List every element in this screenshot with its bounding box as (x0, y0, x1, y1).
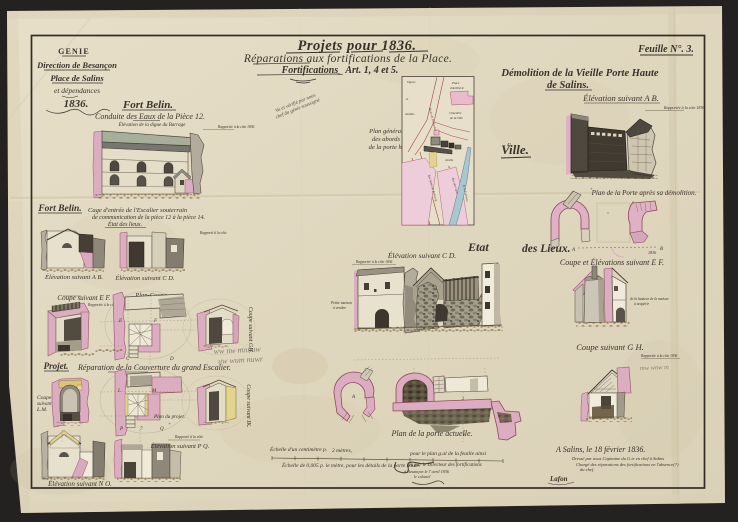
svg-text:GENIE: GENIE (58, 47, 90, 56)
svg-text:P: P (119, 427, 123, 432)
svg-text:1836: 1836 (648, 250, 656, 255)
svg-text:Etat: Etat (467, 240, 489, 254)
svg-text:Conduite des Eaux de la Pièce: Conduite des Eaux de la Pièce 12. (95, 112, 205, 121)
svg-text:Vu par le Directeur des fortif: Vu par le Directeur des fortifications (408, 463, 482, 468)
svg-text:du chef.: du chef. (580, 467, 594, 472)
svg-text:et dépendances: et dépendances (54, 86, 100, 95)
svg-text:D: D (169, 357, 174, 362)
svg-text:Coupe suivant E F.: Coupe suivant E F. (57, 294, 110, 302)
svg-text:Vignes: Vignes (407, 80, 416, 84)
svg-text:Place de Salins: Place de Salins (50, 73, 104, 83)
svg-text:+: + (168, 421, 171, 426)
svg-text:Échelle d'un centimètre p.: Échelle d'un centimètre p. (269, 445, 327, 453)
svg-text:de la Ville: de la Ville (450, 116, 463, 120)
svg-text:L: L (117, 389, 121, 394)
svg-text:Jardin: Jardin (445, 158, 454, 162)
svg-text:de communication de la pièce 1: de communication de la pièce 12 à la piè… (92, 214, 205, 221)
svg-text:Coupe suivant IK.: Coupe suivant IK. (245, 384, 251, 428)
svg-text:pour le plan g.al de la feuill: pour le plan g.al de la feuille ainsi (409, 450, 487, 457)
svg-text:mw wnw m: mw wnw m (640, 364, 669, 372)
svg-text:+: + (590, 186, 593, 191)
svg-text:de la hauteur de la maison: de la hauteur de la maison (630, 297, 669, 301)
svg-text:Jardins: Jardins (405, 112, 415, 116)
svg-text:Coupe: Coupe (37, 395, 52, 401)
svg-text:Plan général: Plan général (368, 128, 403, 135)
svg-text:Ville.: Ville. (501, 142, 529, 157)
svg-text:d'Artillerie: d'Artillerie (450, 86, 465, 90)
svg-text:Q: Q (160, 427, 164, 432)
svg-text:Rapportée à la côte 1836: Rapportée à la côte 1836 (217, 125, 255, 129)
svg-text:Projet.: Projet. (44, 361, 69, 371)
svg-text:et: et (406, 97, 408, 101)
svg-text:Élévation suivant P Q.: Élévation suivant P Q. (150, 442, 210, 450)
svg-text:Échelle de 0,005 p. le mètre,: Échelle de 0,005 p. le mètre, pour les d… (281, 461, 420, 469)
svg-text:Rapporté à la côte: Rapporté à la côte (174, 435, 203, 439)
svg-text:Dressé par nous Capitaine du G: Dressé par nous Capitaine du G.ie en che… (571, 456, 664, 461)
svg-text:2 mètres,: 2 mètres, (332, 448, 353, 454)
svg-text:Rapportée à la côte: Rapportée à la côte (87, 303, 117, 307)
svg-text:Lafon: Lafon (549, 475, 568, 483)
svg-text:à vendre: à vendre (333, 306, 346, 310)
svg-text:Démolition de la Vieille Porte: Démolition de la Vieille Porte Haute (500, 68, 659, 79)
svg-text:Élévation suivant N O.: Élévation suivant N O. (47, 480, 112, 488)
svg-text:B: B (660, 247, 663, 252)
svg-text:Coupe suivant G H.: Coupe suivant G H. (576, 342, 644, 352)
svg-text:à acquérir: à acquérir (634, 302, 650, 306)
svg-text:Feuille N°. 3.: Feuille N°. 3. (637, 44, 694, 55)
svg-text:Rapportée à la côte 1836: Rapportée à la côte 1836 (640, 354, 678, 358)
svg-text:Élévation suivant C D.: Élévation suivant C D. (114, 274, 175, 282)
svg-text:Rapportée à la côte 1836: Rapportée à la côte 1836 (355, 260, 393, 264)
svg-text:de Salins.: de Salins. (547, 80, 589, 91)
svg-text:État des lieux.: État des lieux. (107, 220, 142, 228)
svg-text:Plan de la Porte après sa démo: Plan de la Porte après sa démolition. (591, 189, 697, 197)
svg-text:A Salins, le 18 février 1836.: A Salins, le 18 février 1836. (555, 445, 645, 454)
svg-text:2: 2 (462, 396, 464, 401)
svg-text:L.M.: L.M. (36, 407, 47, 413)
svg-text:Place: Place (451, 81, 460, 85)
svg-text:des Lieux.: des Lieux. (522, 243, 571, 255)
svg-text:Rapportée à la côte 1836: Rapportée à la côte 1836 (663, 105, 704, 110)
svg-text:Cage d'entrée de l'Escalier so: Cage d'entrée de l'Escalier souterrain (88, 207, 187, 214)
svg-text:Fort Belin.: Fort Belin. (122, 99, 173, 111)
svg-text:Direction de Besançon: Direction de Besançon (36, 60, 117, 70)
svg-text:1836.: 1836. (64, 98, 89, 110)
svg-text:de la porte h.: de la porte h. (369, 144, 404, 151)
svg-text:Fort Belin.: Fort Belin. (37, 204, 81, 214)
svg-text:Coupe et Élévations suivant: Coupe et Élévations suivant E F. (560, 257, 664, 267)
svg-text:le colonel: le colonel (414, 474, 431, 479)
svg-text:Élévation de la digue du Barra: Élévation de la digue du Barrage (118, 122, 187, 128)
svg-text:Réparations aux fortifications: Réparations aux fortifications de la Pla… (243, 53, 452, 65)
svg-text:Élévation suivant C D.: Élévation suivant C D. (387, 250, 456, 260)
svg-text:Plan du projet.: Plan du projet. (153, 414, 185, 420)
svg-text:Rapporté à la côte: Rapporté à la côte (199, 231, 227, 235)
svg-text:Élévation suivant A B.: Élévation suivant A B. (582, 93, 659, 103)
svg-text:4°: 4° (507, 142, 511, 147)
svg-text:Cimetière: Cimetière (449, 111, 462, 115)
svg-text:Plan de la porte actuelle.: Plan de la porte actuelle. (390, 429, 472, 438)
svg-text:Petite maison: Petite maison (330, 301, 352, 305)
svg-text:des abords: des abords (372, 136, 401, 143)
svg-text:Élévation suivant A B.: Élévation suivant A B. (44, 273, 103, 281)
